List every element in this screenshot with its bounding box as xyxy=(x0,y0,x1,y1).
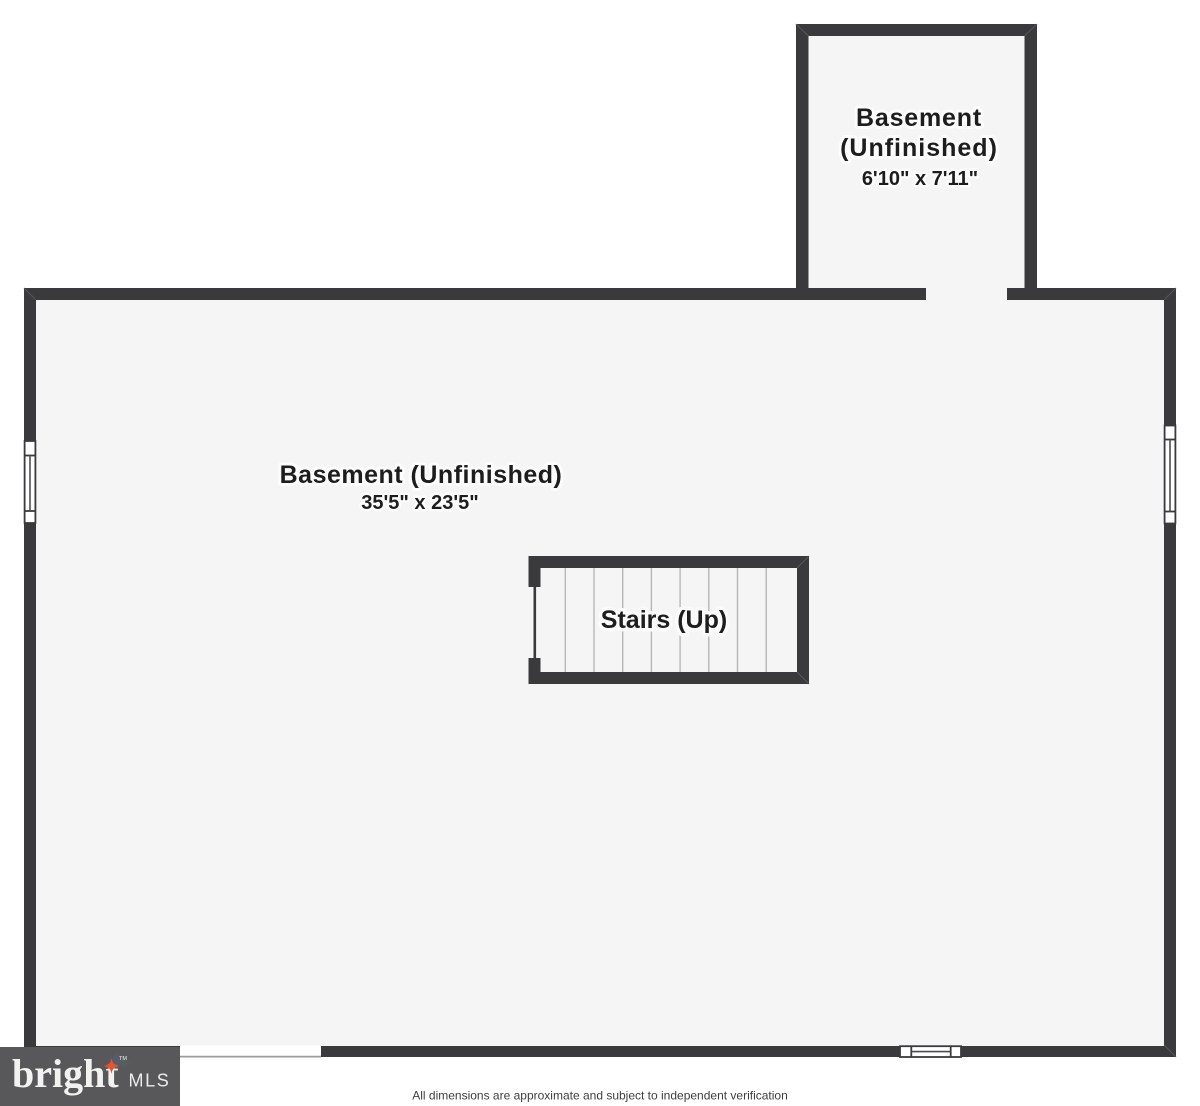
svg-text:(Unfinished): (Unfinished) xyxy=(840,134,998,162)
svg-text:6'10" x 7'11": 6'10" x 7'11" xyxy=(862,168,978,190)
svg-text:TM: TM xyxy=(119,1056,127,1062)
svg-text:Stairs (Up): Stairs (Up) xyxy=(601,606,727,634)
svg-text:MLS: MLS xyxy=(129,1071,171,1091)
svg-text:bright: bright xyxy=(12,1051,119,1096)
svg-text:35'5" x 23'5": 35'5" x 23'5" xyxy=(361,492,478,514)
svg-text:Basement (Unfinished): Basement (Unfinished) xyxy=(280,461,563,489)
svg-text:Basement: Basement xyxy=(856,104,982,132)
svg-text:All dimensions are approximate: All dimensions are approximate and subje… xyxy=(412,1089,788,1103)
